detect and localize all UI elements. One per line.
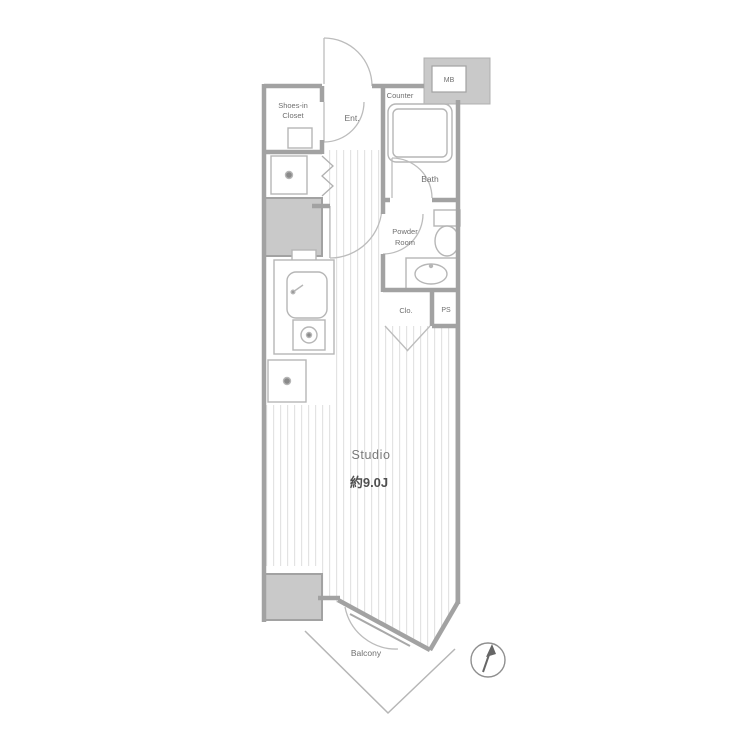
entrance-door-icon [324, 38, 372, 86]
closet-label: Clo. [399, 306, 412, 315]
shoes-closet-label-line1: Shoes-in [278, 101, 308, 110]
pipe-space-label: PS [441, 307, 451, 314]
refrigerator-icon [268, 360, 306, 402]
meter-box-label: MB [444, 77, 455, 84]
powder-room-label-line2: Room [395, 238, 415, 247]
floor-plan-drawing: Shoes-in Closet Ent. Counter MB Bath Pow… [0, 0, 740, 740]
kitchen-counter [274, 250, 334, 354]
sink-basin-icon [406, 258, 458, 290]
counter-label: Counter [387, 91, 414, 100]
pillar-block [264, 574, 322, 620]
washing-machine-icon [271, 156, 307, 194]
balcony-label: Balcony [351, 648, 382, 658]
entrance-label: Ent. [344, 113, 359, 123]
kitchen-sink-icon [287, 272, 327, 318]
water-heater-icon [288, 128, 312, 148]
powder-room-label-line1: Powder [392, 227, 418, 236]
shoes-closet-label-line2: Closet [282, 111, 304, 120]
studio-label: Studio [351, 448, 390, 462]
floor-plan-page: Shoes-in Closet Ent. Counter MB Bath Pow… [0, 0, 740, 740]
bath-label: Bath [421, 174, 439, 184]
bathtub-icon [388, 104, 452, 162]
studio-area-label: 約9.0J [350, 475, 388, 490]
compass-icon [471, 643, 505, 677]
